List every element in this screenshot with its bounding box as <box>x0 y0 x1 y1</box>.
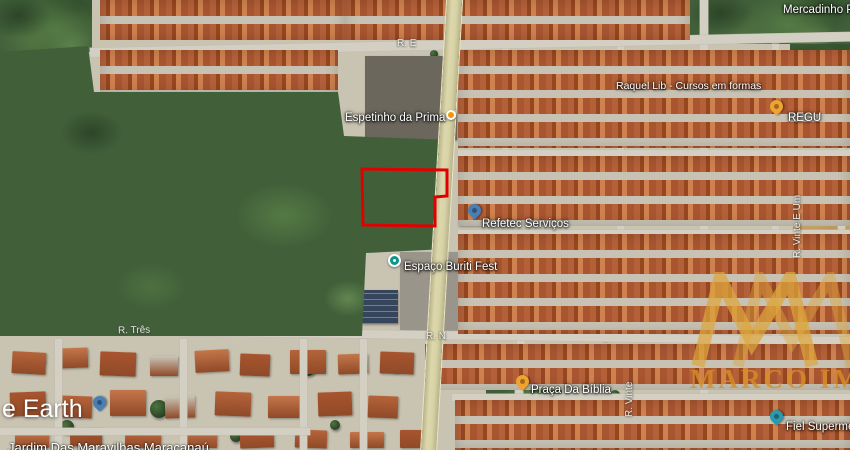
street-label-r-vinte: R. Vinte <box>624 382 635 417</box>
house-roof <box>350 432 384 448</box>
house-roof <box>11 351 46 375</box>
house-roof <box>58 347 89 368</box>
house-roof <box>100 351 137 376</box>
poi-label-mercadinho[interactable]: Mercadinho Pie <box>783 4 850 16</box>
roof-strip <box>345 0 690 40</box>
poi-label-refetec[interactable]: Refetec Serviços <box>482 218 569 230</box>
house-roof <box>240 353 271 376</box>
street-label-r-vinte-e-um: R. Vinte E Um <box>792 195 803 258</box>
poi-label-regu[interactable]: REGU <box>788 112 821 124</box>
google-earth-logo: e Earth <box>2 395 83 424</box>
tree <box>330 420 340 430</box>
roof-strip <box>458 50 850 148</box>
map-canvas[interactable]: Espetinho da Prima Refetec Serviços Espa… <box>0 0 850 450</box>
poi-label-praca[interactable]: Praça Da Bíblia <box>531 384 611 396</box>
house-roof <box>368 395 399 418</box>
house-roof <box>215 391 252 416</box>
poi-icon-buriti[interactable] <box>388 254 401 267</box>
house-roof <box>380 351 415 374</box>
poi-label-buriti[interactable]: Espaço Buriti Fest <box>404 261 497 273</box>
poi-label-raquel[interactable]: Raquel Lib - Cursos em formas <box>616 80 761 92</box>
street-label-r-e: R. E <box>397 38 416 49</box>
poi-dot-espetinho[interactable] <box>446 110 456 120</box>
poi-label-fiel[interactable]: Fiel Supermerc <box>786 421 850 433</box>
house-roof <box>268 396 300 418</box>
street <box>360 339 367 450</box>
house-roof <box>290 350 326 374</box>
roof-strip <box>100 0 345 40</box>
house-roof <box>318 391 353 416</box>
street-label-r-tres: R. Três <box>118 325 151 337</box>
poi-label-espetinho[interactable]: Espetinho da Prima <box>345 112 445 124</box>
vegetation-patch <box>0 0 92 52</box>
roof-strip <box>100 50 338 92</box>
watermark-text: MARCO IMAG <box>690 364 850 395</box>
house-roof <box>194 349 229 373</box>
house-roof <box>150 356 178 376</box>
street-label-r-n: R. N <box>426 331 446 342</box>
house-roof <box>240 433 274 448</box>
poi-pin-unnamed[interactable] <box>90 393 108 411</box>
street <box>0 428 310 435</box>
area-caption: Jardim Das Maravilhas Maracanaú <box>8 440 209 450</box>
solar-roof <box>362 290 398 324</box>
house-roof <box>110 390 146 416</box>
